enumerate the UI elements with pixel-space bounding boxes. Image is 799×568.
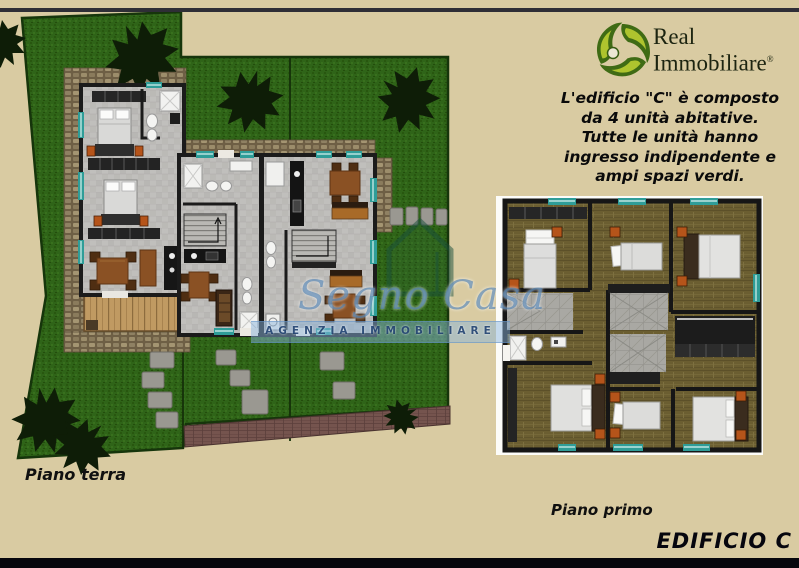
wardrobe — [509, 207, 587, 219]
party-wall — [259, 157, 264, 333]
door-opening — [102, 291, 128, 298]
staircase — [292, 230, 336, 268]
agency-name-line2: Immobiliare® — [653, 48, 799, 75]
building-name-label: EDIFICIO C — [598, 529, 792, 553]
toilet-icon — [206, 181, 218, 191]
bidet-icon — [221, 181, 232, 191]
ground-building-left-wing — [78, 82, 184, 298]
real-immobiliare-logo-icon — [587, 20, 650, 86]
bidet-icon — [147, 129, 157, 141]
trademark-symbol: ® — [767, 54, 774, 64]
sofa — [332, 202, 368, 219]
watermark-agency-subtitle: AGENZIA IMMOBILIARE — [251, 321, 510, 343]
watermark-agency-name: Segno Casa — [298, 274, 546, 318]
kitchen-counter — [290, 161, 304, 226]
wardrobe-block — [675, 316, 755, 357]
cabinet — [140, 250, 156, 286]
deck-step — [86, 320, 98, 330]
toilet-icon — [532, 338, 543, 351]
bottom-border-bar — [0, 558, 799, 568]
staircase — [184, 214, 226, 246]
wardrobe — [508, 368, 517, 442]
door-opening — [503, 345, 510, 361]
top-border-line — [0, 8, 799, 12]
building-description: L'edificio "C" è composto da 4 unità abi… — [542, 89, 798, 187]
kitchen-counter — [184, 249, 226, 263]
double-bed — [551, 385, 605, 431]
ground-floor-label: Piano terra — [25, 465, 126, 484]
bed — [611, 243, 662, 270]
agency-name-line1: Real — [653, 25, 799, 48]
first-floor-plan — [496, 196, 763, 455]
agency-logo-text: Real Immobiliare® — [653, 25, 799, 75]
bathtub — [266, 162, 284, 186]
sink — [230, 161, 252, 171]
wood-deck — [84, 295, 178, 331]
double-bed — [684, 234, 740, 279]
first-floor-label: Piano primo — [551, 501, 653, 519]
toilet-icon — [147, 114, 158, 128]
sink — [551, 337, 566, 347]
ground-floor-site-plan — [0, 12, 451, 483]
floorplan-sheet: Real Immobiliare® L'edificio "C" è compo… — [0, 0, 799, 568]
entry-door — [218, 150, 234, 158]
